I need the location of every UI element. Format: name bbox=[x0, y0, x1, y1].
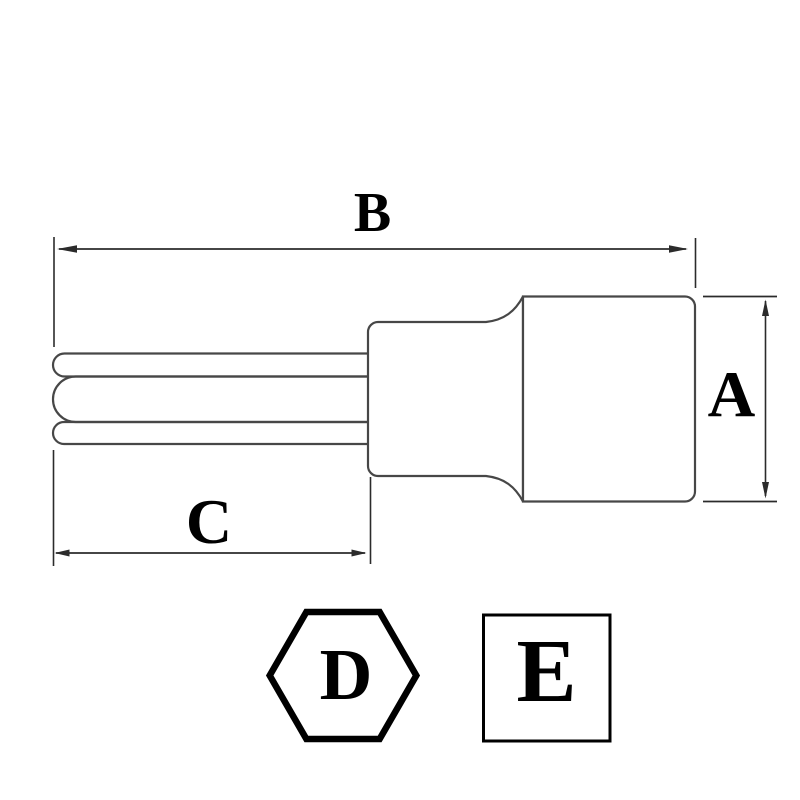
svg-text:E: E bbox=[516, 622, 576, 721]
svg-text:B: B bbox=[354, 182, 391, 244]
svg-text:A: A bbox=[708, 359, 756, 432]
svg-text:D: D bbox=[320, 634, 373, 715]
svg-text:C: C bbox=[186, 486, 232, 557]
